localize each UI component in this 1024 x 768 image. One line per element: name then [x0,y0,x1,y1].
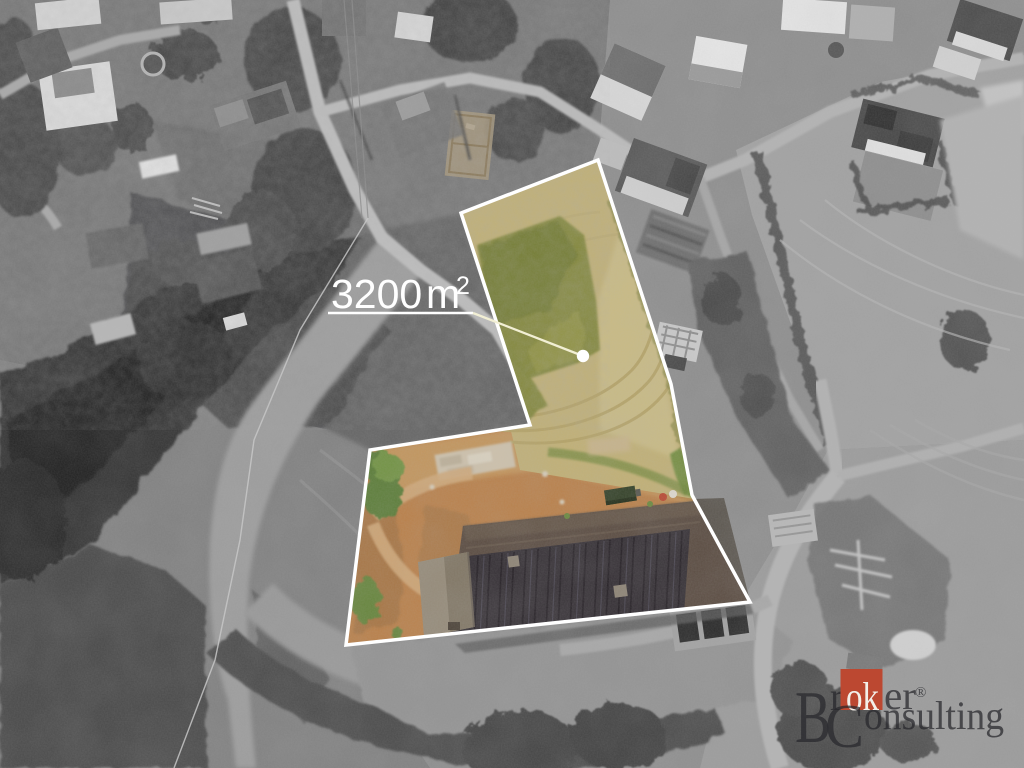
svg-text:2: 2 [456,272,470,300]
svg-text:3200: 3200 [331,271,422,317]
svg-text:C: C [825,693,864,761]
svg-text:onsulting: onsulting [864,693,1004,738]
